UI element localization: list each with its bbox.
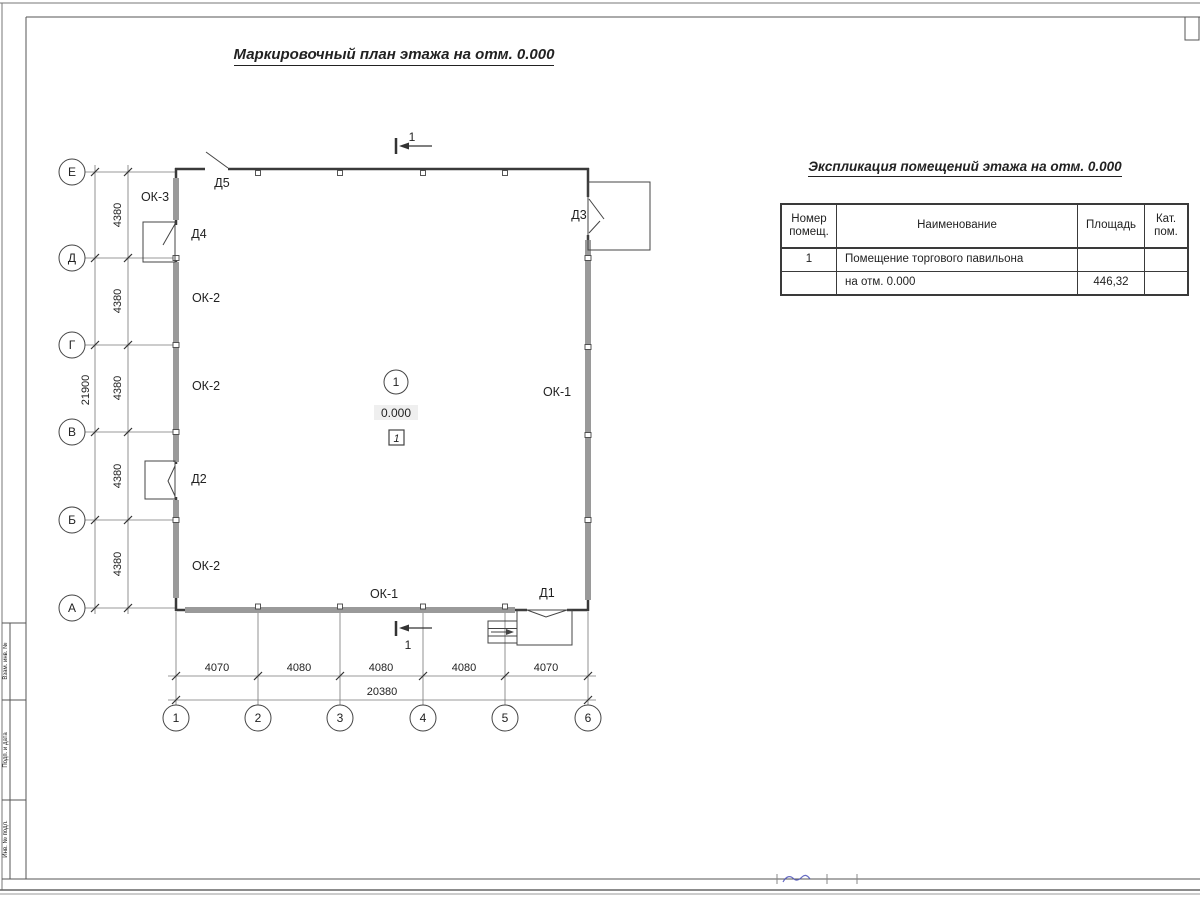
door-d1-leaves <box>527 610 567 617</box>
axis-number: 4 <box>420 711 427 725</box>
side-stamp: Взам. инв. № Подп. и дата Инв. № подл. <box>2 623 26 879</box>
walls <box>175 168 589 611</box>
door-d3-leaf <box>589 199 604 219</box>
axis-letter: Г <box>69 338 76 352</box>
steps-arrowhead <box>506 629 514 635</box>
section-mark-number: 1 <box>409 130 416 144</box>
window-label-ok2: ОК-2 <box>192 291 220 305</box>
room-elevation: 0.000 <box>381 406 411 420</box>
dim-segment-h: 4070 <box>205 662 229 674</box>
door-d3-vestibule <box>588 182 650 250</box>
dim-total-v: 21900 <box>80 375 92 406</box>
axis-number: 6 <box>585 711 592 725</box>
dim-segment-h: 4080 <box>452 662 476 674</box>
section-mark-number: 1 <box>405 638 412 652</box>
room-marker: 1 0.000 1 <box>374 370 418 445</box>
axis-letter: В <box>68 425 76 439</box>
stamp-label: Взам. инв. № <box>2 642 9 679</box>
axis-grid-bottom: 4070 4080 4080 4080 4070 20380 1 2 3 4 5… <box>163 612 601 731</box>
mullion-marks <box>173 171 591 610</box>
window-label-ok1: ОК-1 <box>543 385 571 399</box>
dim-segment-v: 4380 <box>112 552 124 576</box>
dim-segment-v: 4380 <box>112 464 124 488</box>
door-d1-porch <box>517 610 572 645</box>
door-d2-leaves <box>168 466 175 496</box>
door-d3-leaf <box>589 221 600 233</box>
axis-circles-numbers <box>163 705 601 731</box>
window-label-ok3: ОК-3 <box>141 190 169 204</box>
axis-grid-left: Е Д Г В Б А 21900 4380 4380 4380 4380 43… <box>59 159 175 621</box>
door-label-d5: Д5 <box>214 176 229 190</box>
window-label-ok1: ОК-1 <box>370 587 398 601</box>
door-d4-vestibule <box>143 222 175 262</box>
room-number: 1 <box>393 375 400 389</box>
room-zone-number: 1 <box>393 433 399 445</box>
axis-number: 3 <box>337 711 344 725</box>
plan-labels: ОК-3 Д5 Д4 ОК-2 ОК-2 Д2 ОК-2 ОК-1 ОК-1 Д… <box>141 176 587 601</box>
axis-letter: Е <box>68 165 76 179</box>
window-label-ok2: ОК-2 <box>192 559 220 573</box>
axis-number: 2 <box>255 711 262 725</box>
stamp-label: Инв. № подл. <box>2 820 9 858</box>
drawing-sheet: Маркировочный план этажа на отм. 0.000 Э… <box>0 0 1200 900</box>
axis-letter: Б <box>68 513 76 527</box>
door-d2-vestibule <box>145 461 175 499</box>
window-bands <box>176 178 588 610</box>
axis-number: 5 <box>502 711 509 725</box>
axis-number: 1 <box>173 711 180 725</box>
door-label-d1: Д1 <box>539 586 554 600</box>
stamp-label: Подп. и дата <box>3 732 9 768</box>
door-label-d4: Д4 <box>191 227 206 241</box>
window-label-ok2: ОК-2 <box>192 379 220 393</box>
dim-segment-v: 4380 <box>112 203 124 227</box>
door-d4-leaf <box>163 224 175 245</box>
floor-plan-drawing: Взам. инв. № Подп. и дата Инв. № подл. <box>0 0 1200 900</box>
page-frame <box>0 3 1200 894</box>
dim-segment-v: 4380 <box>112 376 124 400</box>
dim-segment-h: 4070 <box>534 662 558 674</box>
axis-letter: А <box>68 601 76 615</box>
door-d5-leaf <box>206 152 228 168</box>
dim-segment-v: 4380 <box>112 289 124 313</box>
dim-segment-h: 4080 <box>287 662 311 674</box>
dim-segment-h: 4080 <box>369 662 393 674</box>
dim-total-h: 20380 <box>367 686 398 698</box>
door-label-d3: Д3 <box>571 208 586 222</box>
axis-letter: Д <box>68 251 76 265</box>
frame-corner-box <box>1185 17 1199 40</box>
door-label-d2: Д2 <box>191 472 206 486</box>
